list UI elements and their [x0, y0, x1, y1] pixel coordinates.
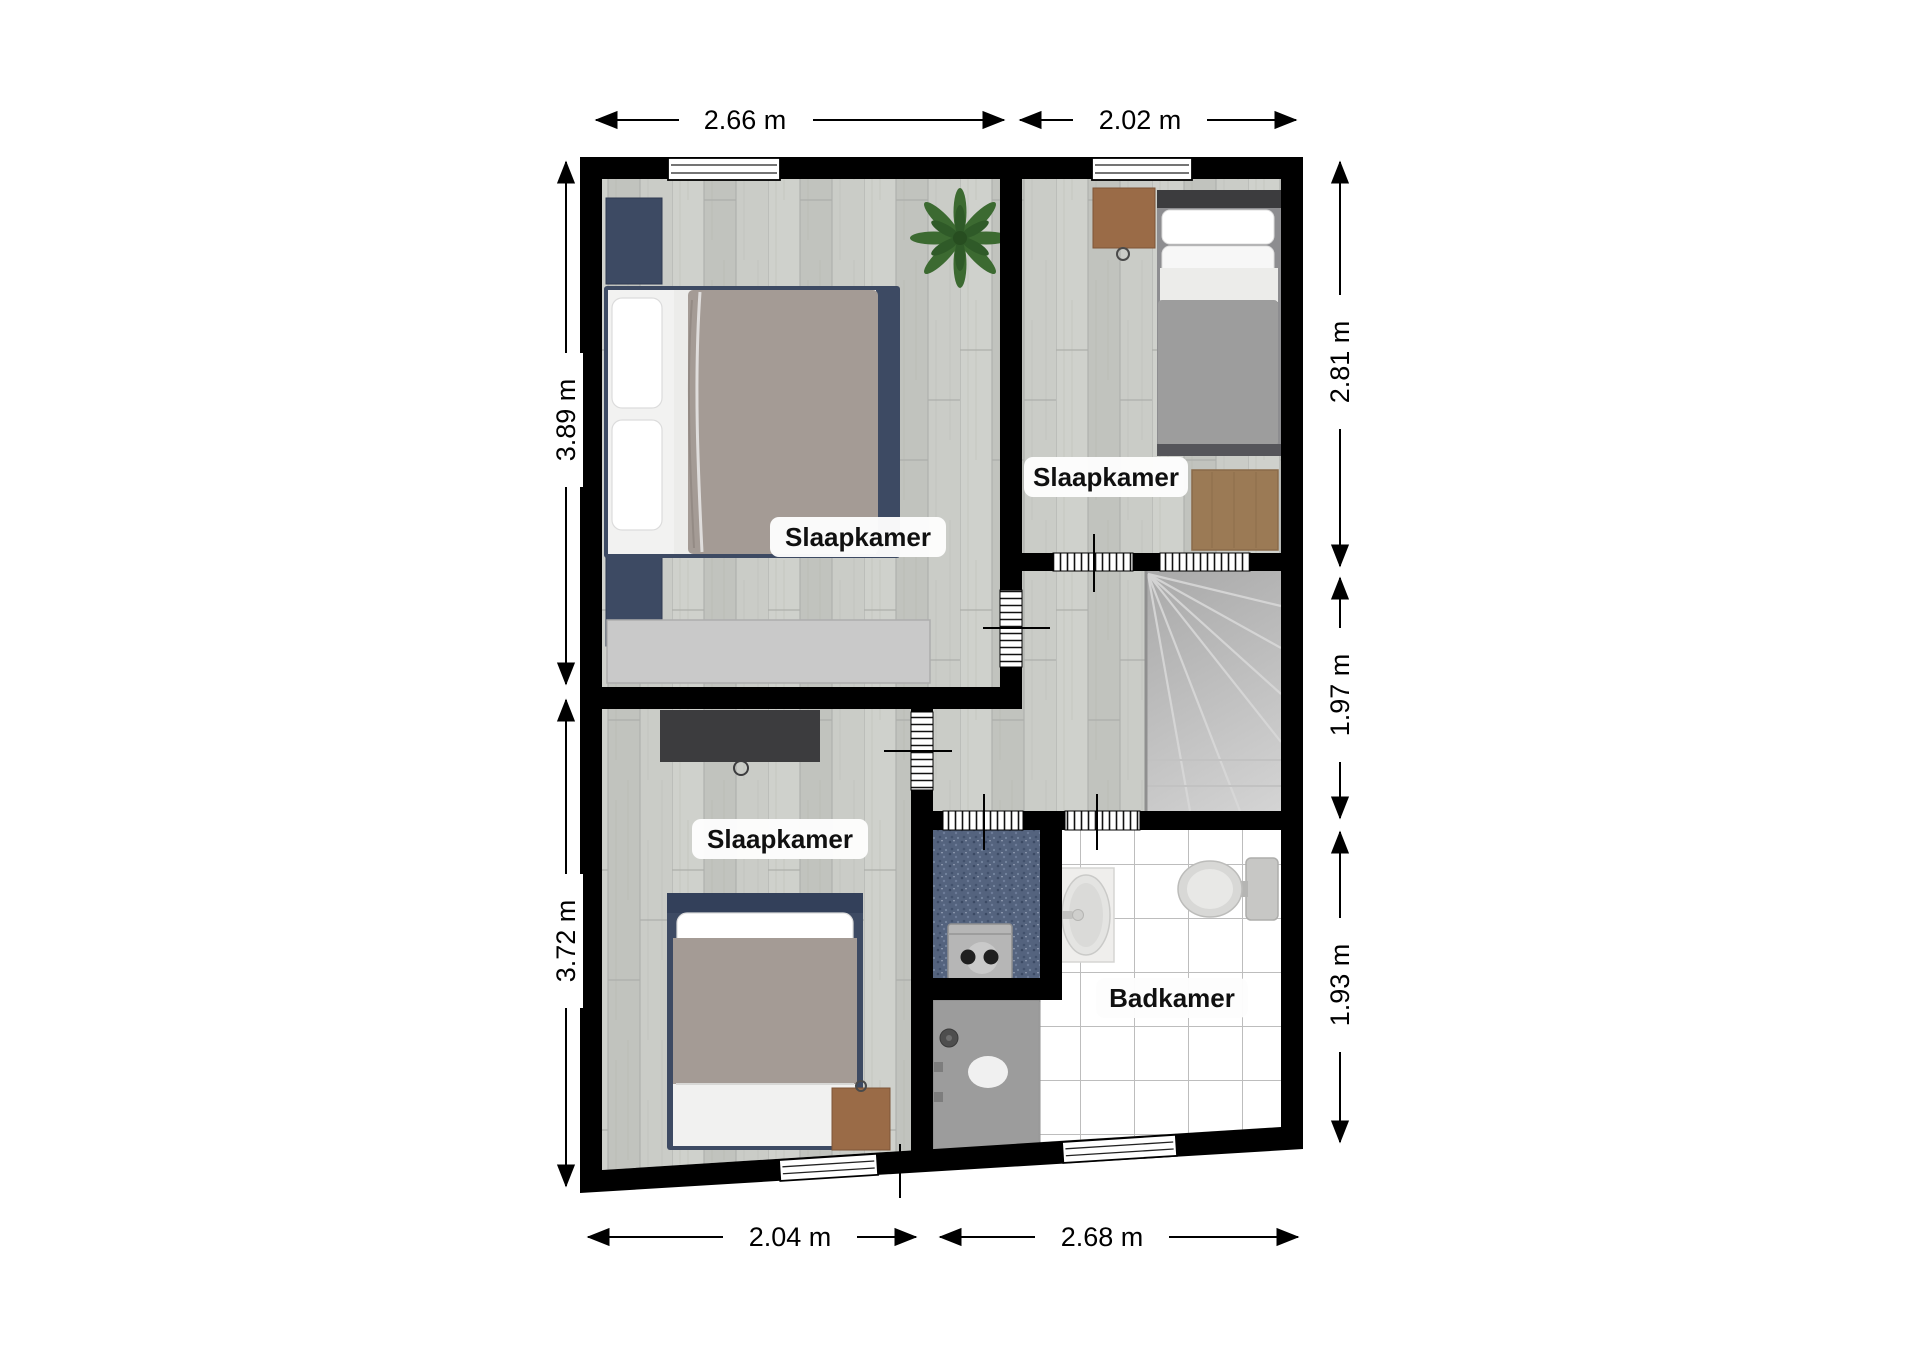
room-label-bathroom: Badkamer: [1096, 978, 1248, 1018]
dim-label: 3.72 m: [551, 900, 581, 983]
dim-label: 2.04 m: [749, 1222, 832, 1252]
single-bed-icon: [1157, 190, 1281, 456]
dim-label: 1.97 m: [1325, 654, 1355, 737]
room-label-text: Slaapkamer: [707, 824, 853, 854]
shower-icon: [933, 1000, 1040, 1150]
rug-icon: [1192, 470, 1278, 550]
room-label-text: Badkamer: [1109, 983, 1235, 1013]
dim-label: 2.68 m: [1061, 1222, 1144, 1252]
dim-label: 2.66 m: [704, 105, 787, 135]
nightstand-icon: [832, 1081, 890, 1150]
floorplan-page: Slaapkamer Slaapkamer Slaapkamer Badkame…: [0, 0, 1920, 1358]
washing-machine-icon: [948, 924, 1012, 980]
dim-label: 3.89 m: [551, 379, 581, 462]
dim-label: 2.81 m: [1325, 321, 1355, 404]
room-label-bedroom-3: Slaapkamer: [692, 819, 868, 859]
floor-plan-svg: Slaapkamer Slaapkamer Slaapkamer Badkame…: [0, 0, 1920, 1358]
stair-railing: [1160, 553, 1250, 571]
room-label-text: Slaapkamer: [1033, 462, 1179, 492]
stairs-icon: [1145, 571, 1281, 811]
dresser-icon: [607, 620, 930, 683]
toilet-icon: [1178, 858, 1278, 920]
plant-icon: [910, 188, 1010, 288]
door-bathroom: [1065, 811, 1140, 830]
sink-icon: [1056, 868, 1114, 962]
room-label-bedroom-2: Slaapkamer: [1024, 457, 1188, 497]
window-bedroom-2: [1092, 158, 1192, 180]
dim-label: 1.93 m: [1325, 944, 1355, 1027]
room-label-bedroom-main: Slaapkamer: [770, 517, 946, 557]
window-bedroom-main: [668, 158, 780, 180]
wardrobe-icon: [606, 198, 662, 284]
dim-label: 2.02 m: [1099, 105, 1182, 135]
room-label-text: Slaapkamer: [785, 522, 931, 552]
